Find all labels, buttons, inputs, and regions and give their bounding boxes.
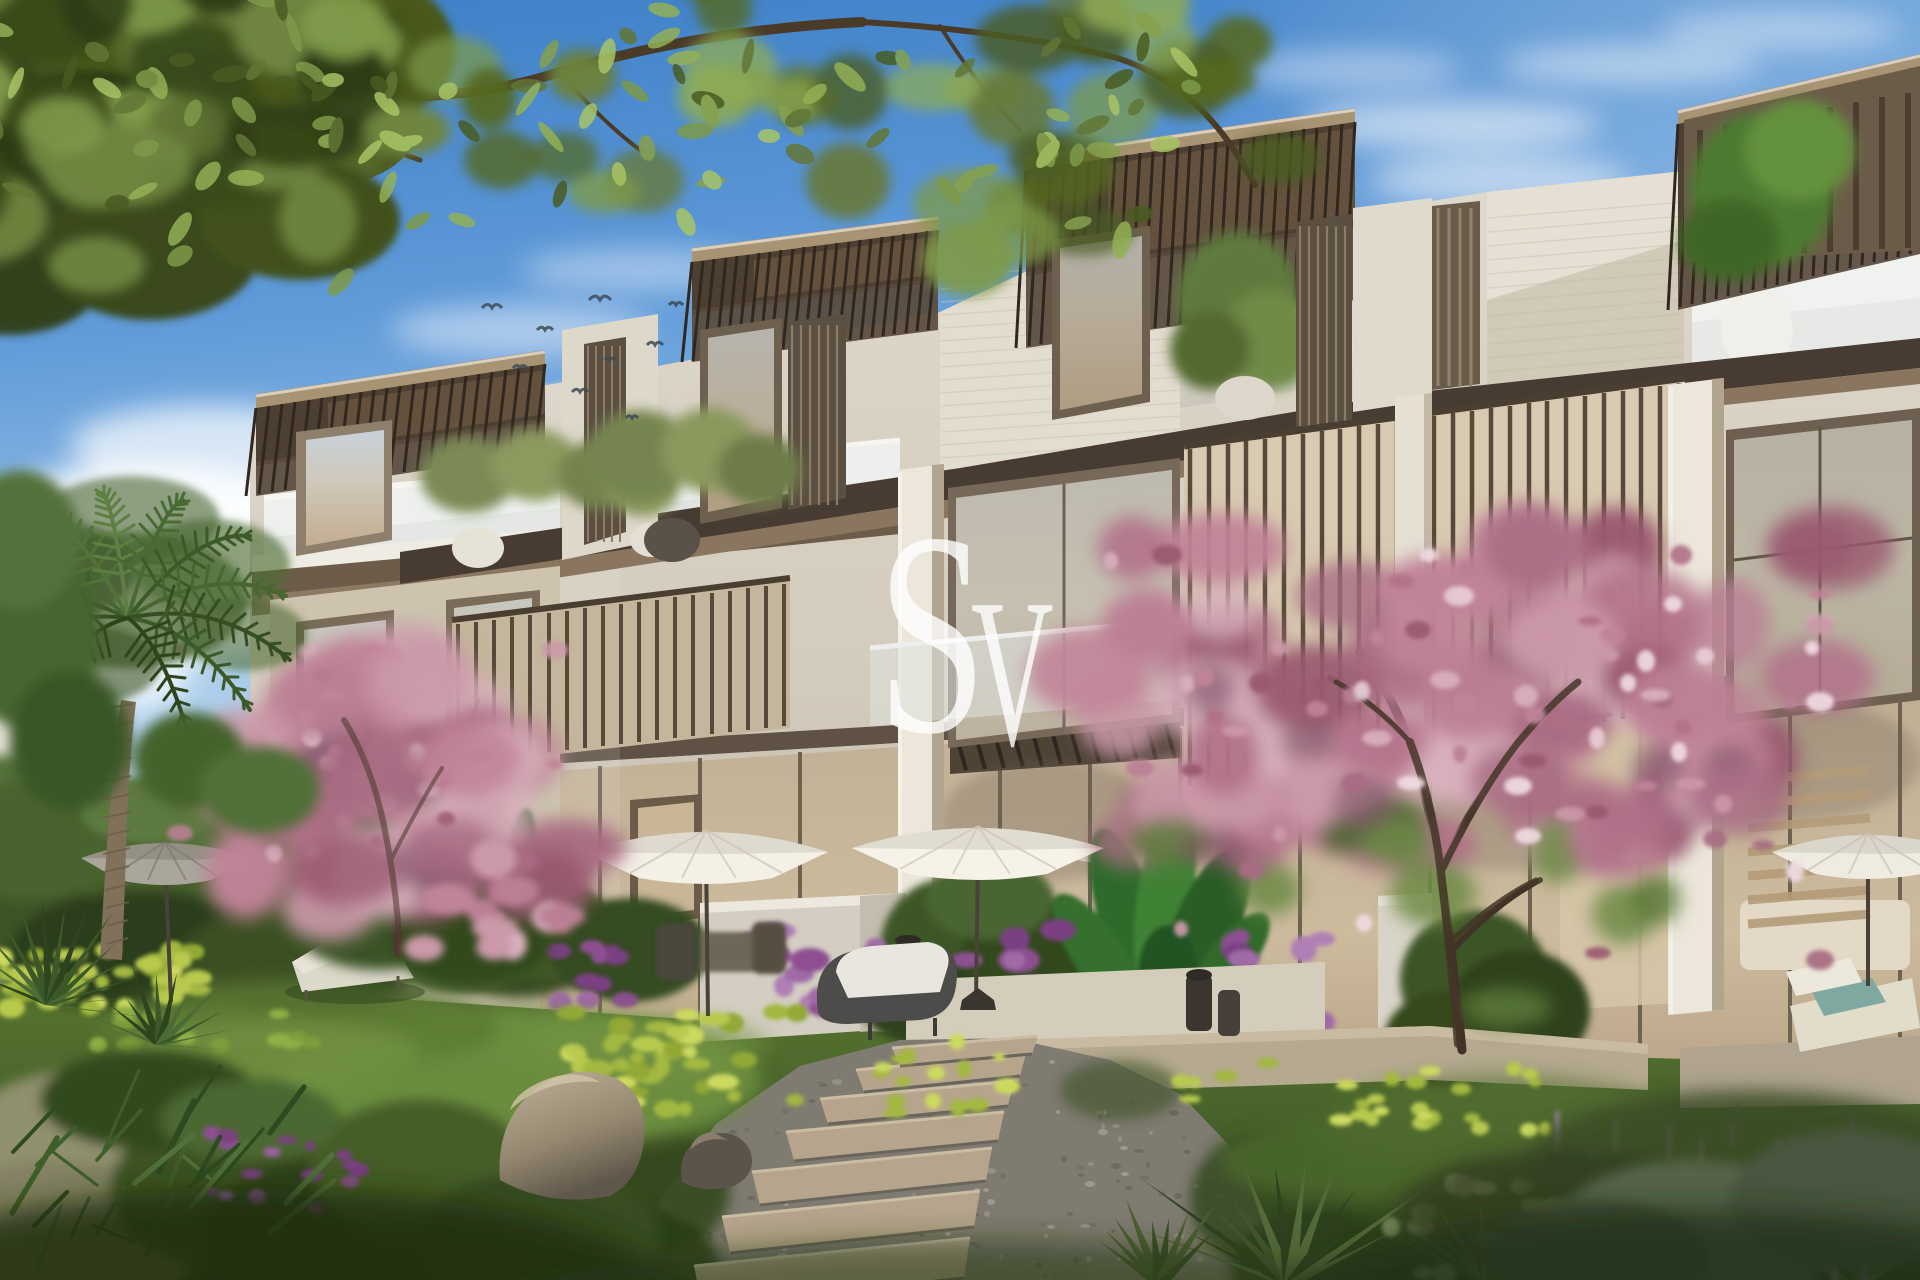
svg-text:V: V — [971, 555, 1054, 790]
